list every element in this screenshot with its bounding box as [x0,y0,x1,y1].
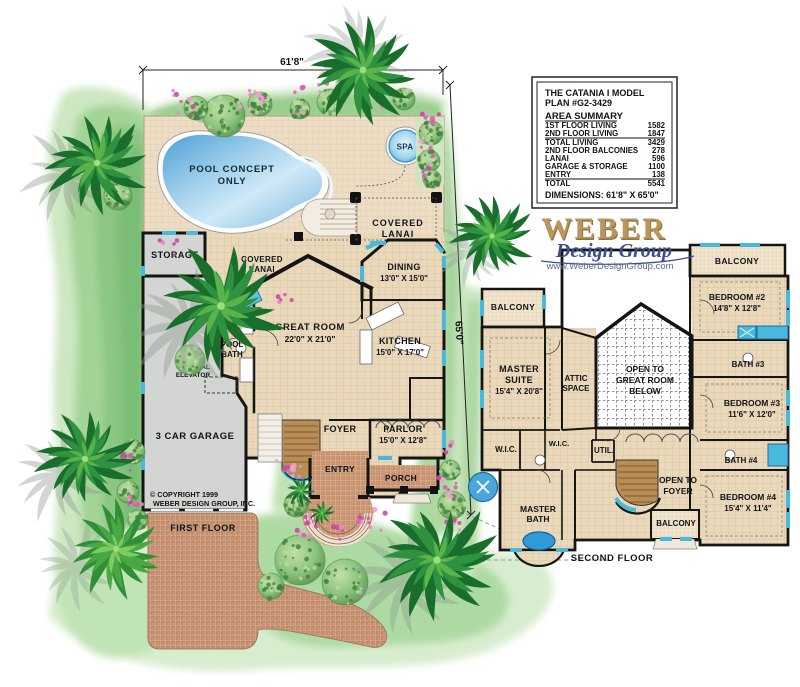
svg-text:MASTER: MASTER [520,504,556,514]
svg-text:POOL CONCEPT: POOL CONCEPT [189,164,274,175]
svg-text:BEDROOM #4: BEDROOM #4 [720,492,776,502]
svg-text:15'4" X 11'4": 15'4" X 11'4" [724,504,772,513]
svg-text:OPEN TO: OPEN TO [626,364,664,374]
svg-text:KITCHEN: KITCHEN [379,336,421,346]
svg-text:GREAT ROOM: GREAT ROOM [275,322,345,333]
svg-text:1847: 1847 [648,129,665,138]
svg-text:COVERED: COVERED [372,218,424,228]
svg-text:WEBER DESIGN GROUP, INC.: WEBER DESIGN GROUP, INC. [153,499,255,508]
svg-text:FIRST FLOOR: FIRST FLOOR [170,523,236,533]
svg-text:SPACE: SPACE [563,384,591,393]
svg-text:11'6" X 12'0": 11'6" X 12'0" [728,410,776,419]
svg-text:Design Group: Design Group [555,240,672,262]
svg-text:3 CAR GARAGE: 3 CAR GARAGE [156,431,235,442]
svg-text:BATH: BATH [527,514,550,524]
svg-text:ENTRY: ENTRY [545,170,572,179]
svg-text:LANAI: LANAI [382,229,415,239]
svg-text:61'8": 61'8" [280,57,304,68]
svg-text:ONLY: ONLY [218,176,247,187]
svg-text:W.I.C.: W.I.C. [549,439,569,448]
svg-text:14'8" X 12'8": 14'8" X 12'8" [713,304,761,313]
svg-text:BELOW: BELOW [629,386,662,396]
svg-text:UTIL.: UTIL. [594,446,614,455]
svg-text:138: 138 [652,170,666,179]
svg-text:MASTER: MASTER [499,364,539,374]
svg-text:SPA: SPA [397,143,414,152]
svg-text:65'0": 65'0" [452,321,464,346]
svg-text:15'0" X 12'8": 15'0" X 12'8" [379,436,427,445]
svg-text:5541: 5541 [648,179,666,188]
svg-text:W.I.C.: W.I.C. [495,445,517,454]
svg-text:BATH #4: BATH #4 [725,456,758,465]
svg-text:FOYER: FOYER [663,486,692,496]
svg-text:PLAN #G2-3429: PLAN #G2-3429 [545,98,612,108]
svg-text:www.WeberDesignGroup.com: www.WeberDesignGroup.com [545,261,673,272]
svg-text:BALCONY: BALCONY [656,519,696,528]
svg-text:BEDROOM #2: BEDROOM #2 [709,292,765,302]
svg-text:ENTRY: ENTRY [325,464,355,474]
svg-text:BALCONY: BALCONY [715,256,759,266]
svg-text:SUITE: SUITE [505,375,533,385]
svg-text:PARLOR: PARLOR [383,424,422,434]
svg-text:TOTAL: TOTAL [545,179,571,188]
svg-text:© COPYRIGHT 1999: © COPYRIGHT 1999 [150,490,218,499]
svg-text:DINING: DINING [387,262,420,272]
svg-text:THE CATANIA I MODEL: THE CATANIA I MODEL [545,88,645,98]
svg-text:FOYER: FOYER [324,424,357,434]
svg-text:PORCH: PORCH [385,473,417,483]
svg-text:BATH #3: BATH #3 [732,360,765,369]
svg-text:2ND FLOOR LIVING: 2ND FLOOR LIVING [545,129,618,138]
svg-text:BEDROOM #3: BEDROOM #3 [724,398,780,408]
svg-text:15'4" X 20'8": 15'4" X 20'8" [495,387,543,396]
svg-text:COVERED: COVERED [241,255,283,264]
svg-text:GREAT ROOM: GREAT ROOM [616,375,674,385]
svg-text:SECOND FLOOR: SECOND FLOOR [571,553,654,564]
svg-text:13'0" X 15'0": 13'0" X 15'0" [380,274,428,283]
svg-text:22'0" X 21'0": 22'0" X 21'0" [285,334,336,344]
svg-text:15'0" X 17'0": 15'0" X 17'0" [376,348,424,357]
svg-text:BALCONY: BALCONY [491,302,535,312]
svg-text:OPEN TO: OPEN TO [659,475,697,485]
svg-text:DIMENSIONS: 61'8" X 65'0": DIMENSIONS: 61'8" X 65'0" [545,190,659,200]
svg-text:ATTIC: ATTIC [565,374,588,383]
